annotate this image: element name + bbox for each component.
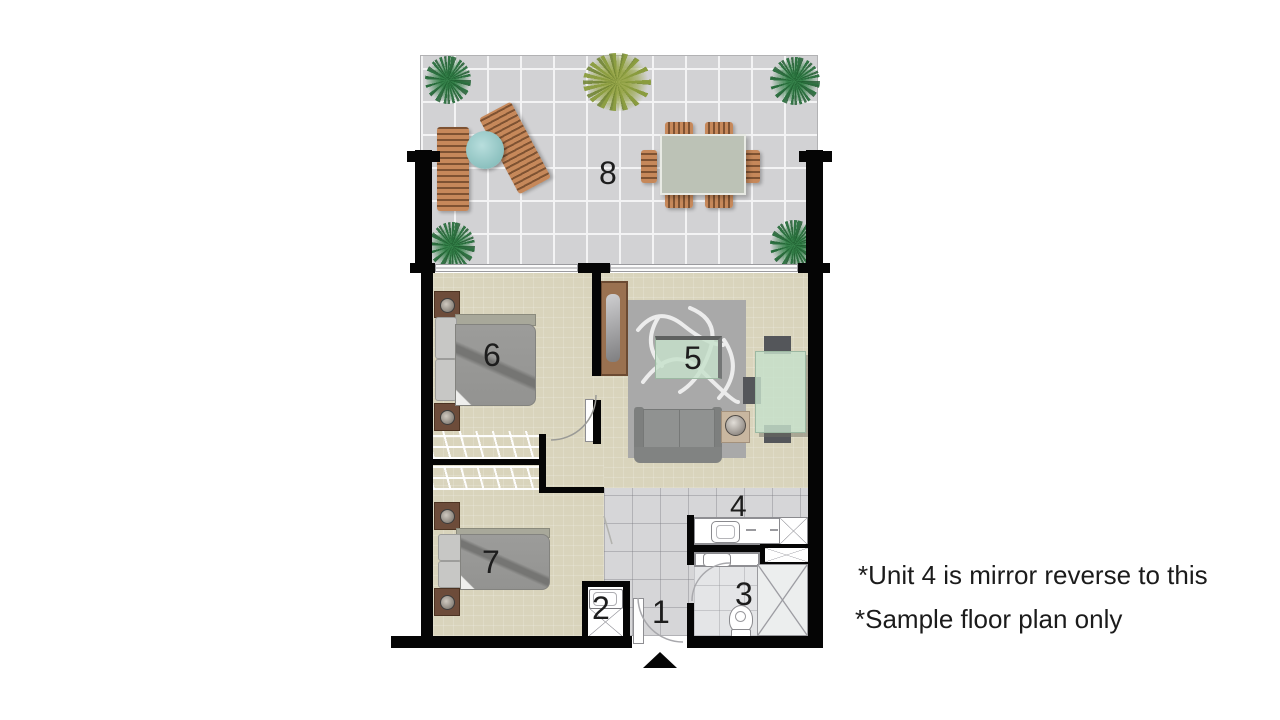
sun-lounger <box>437 127 469 211</box>
room-label-bedroom-second: 7 <box>482 546 500 578</box>
terrace-chair <box>641 150 657 183</box>
plant-icon <box>429 222 475 270</box>
wardrobe <box>433 466 546 490</box>
terrace-chair <box>744 150 760 183</box>
fridge-space <box>779 517 808 545</box>
note-mirror-reverse: *Unit 4 is mirror reverse to this <box>858 560 1208 591</box>
room-label-entry: 1 <box>652 596 670 628</box>
pillow <box>435 359 457 401</box>
storage-niche <box>765 548 808 562</box>
pillow <box>438 561 462 588</box>
plant-icon <box>770 57 820 105</box>
wall <box>582 581 588 645</box>
room-label-terrace: 8 <box>599 157 617 189</box>
entry-door-leaf <box>633 598 644 644</box>
wall <box>593 400 601 444</box>
wall <box>808 265 823 648</box>
room-label-bedroom-main: 6 <box>483 339 501 371</box>
room-label-laundry: 2 <box>592 592 610 624</box>
entry-arrow-icon <box>643 652 677 668</box>
room-label-living: 5 <box>684 342 702 374</box>
wall <box>687 603 694 645</box>
wall <box>421 459 541 465</box>
terrace-dining-table <box>660 134 746 195</box>
wall <box>421 268 433 648</box>
wall <box>806 150 823 267</box>
floor-plan-page: 8 6 7 5 <box>0 0 1280 720</box>
wall <box>391 636 632 648</box>
wall <box>407 151 440 162</box>
note-sample-plan: *Sample floor plan only <box>855 604 1122 635</box>
wardrobe <box>433 431 540 459</box>
wall <box>578 263 610 273</box>
pillow <box>435 317 457 359</box>
room-label-kitchen: 4 <box>730 492 747 522</box>
wall <box>799 151 832 162</box>
nightstand <box>434 403 460 431</box>
plant-icon <box>425 56 471 104</box>
round-side-table <box>466 131 504 169</box>
wall <box>623 581 630 645</box>
pillow <box>438 534 462 561</box>
cooktop-mark <box>770 529 778 531</box>
wall <box>687 515 694 565</box>
palm-tree-icon <box>583 53 651 111</box>
table-lamp <box>725 415 746 436</box>
wall <box>415 150 432 267</box>
bed <box>460 534 550 590</box>
wall <box>592 273 601 376</box>
window <box>435 264 578 272</box>
cooktop-mark <box>746 529 756 531</box>
shower <box>757 564 808 636</box>
sofa <box>634 407 722 463</box>
wall <box>690 545 763 552</box>
sliding-door-window <box>610 264 798 272</box>
kitchen-sink <box>711 521 740 543</box>
wall <box>539 487 604 493</box>
wash-basin <box>703 553 731 567</box>
tv-cabinet <box>600 281 628 376</box>
dining-table <box>755 351 806 433</box>
room-label-bathroom: 3 <box>735 578 753 610</box>
nightstand <box>434 588 460 616</box>
wall <box>539 434 546 493</box>
nightstand <box>434 502 460 530</box>
wall <box>687 636 817 648</box>
